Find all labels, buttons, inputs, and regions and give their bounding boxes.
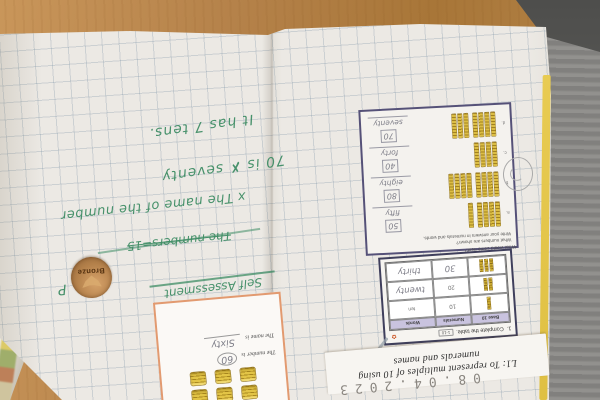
cell-word-handwritten: thirty	[385, 260, 432, 282]
flower-icon: ✿	[391, 333, 397, 340]
answer-area: 40 forty	[367, 145, 410, 173]
answer-area: 50 fifty	[370, 205, 413, 233]
cell-numeral: 10	[434, 295, 471, 316]
cell-word-handwritten: twenty	[387, 279, 434, 301]
complete-the-sentences-worksheet: Complete the sentences The number is 60 …	[153, 292, 291, 400]
word-line: eighty	[371, 175, 412, 188]
cell-numeral: 20	[433, 277, 470, 298]
cell-word: ten	[388, 298, 435, 320]
numeral-box: 50	[385, 219, 402, 233]
number-value-handwritten: 60	[216, 351, 238, 367]
base-ten-rods	[417, 202, 500, 230]
word-line: seventy	[368, 115, 409, 128]
base-ten-rods	[413, 112, 496, 140]
base-ten-rods	[414, 142, 497, 170]
word-line: fifty	[372, 205, 413, 218]
number-label: The number is	[241, 348, 276, 357]
range-chip: 1-10	[439, 329, 454, 337]
name-value-handwritten: Sixty	[204, 334, 241, 351]
cell-rods	[470, 293, 509, 315]
cell-rods	[467, 255, 506, 277]
cell-rods	[469, 274, 508, 296]
answer-area: 80 eighty	[369, 175, 412, 203]
numeral-box: 40	[382, 159, 399, 173]
word-line: forty	[369, 145, 410, 158]
photo-exercise-book-on-desk: It has 7 tens. 70 is ✗ seventy x The nam…	[0, 0, 600, 400]
place-value-worksheet: What numbers are shown? Write your answe…	[358, 102, 518, 256]
numeral-box: 80	[383, 189, 400, 203]
answer-area: 70 seventy	[366, 115, 409, 143]
cell-numeral-handwritten: 30	[431, 258, 468, 279]
row-label: d.	[499, 121, 505, 126]
base-ten-table: Base 10 Numerals Words 10 ten 20 twenty …	[384, 254, 511, 331]
numeral-box: 70	[380, 129, 397, 143]
base-ten-blocks-image	[191, 367, 258, 400]
name-label: The name is	[245, 331, 274, 340]
title-number: 1.	[507, 325, 512, 331]
handwritten-margin-letter: P	[57, 281, 67, 298]
complete-the-table-worksheet: 1. Complete the table. 1-10 ✿ Base 10 Nu…	[378, 248, 518, 345]
title-text: Complete the table.	[456, 326, 504, 335]
row-label: c.	[501, 151, 507, 156]
row-label: a.	[504, 210, 510, 215]
base-ten-rods	[416, 172, 499, 200]
